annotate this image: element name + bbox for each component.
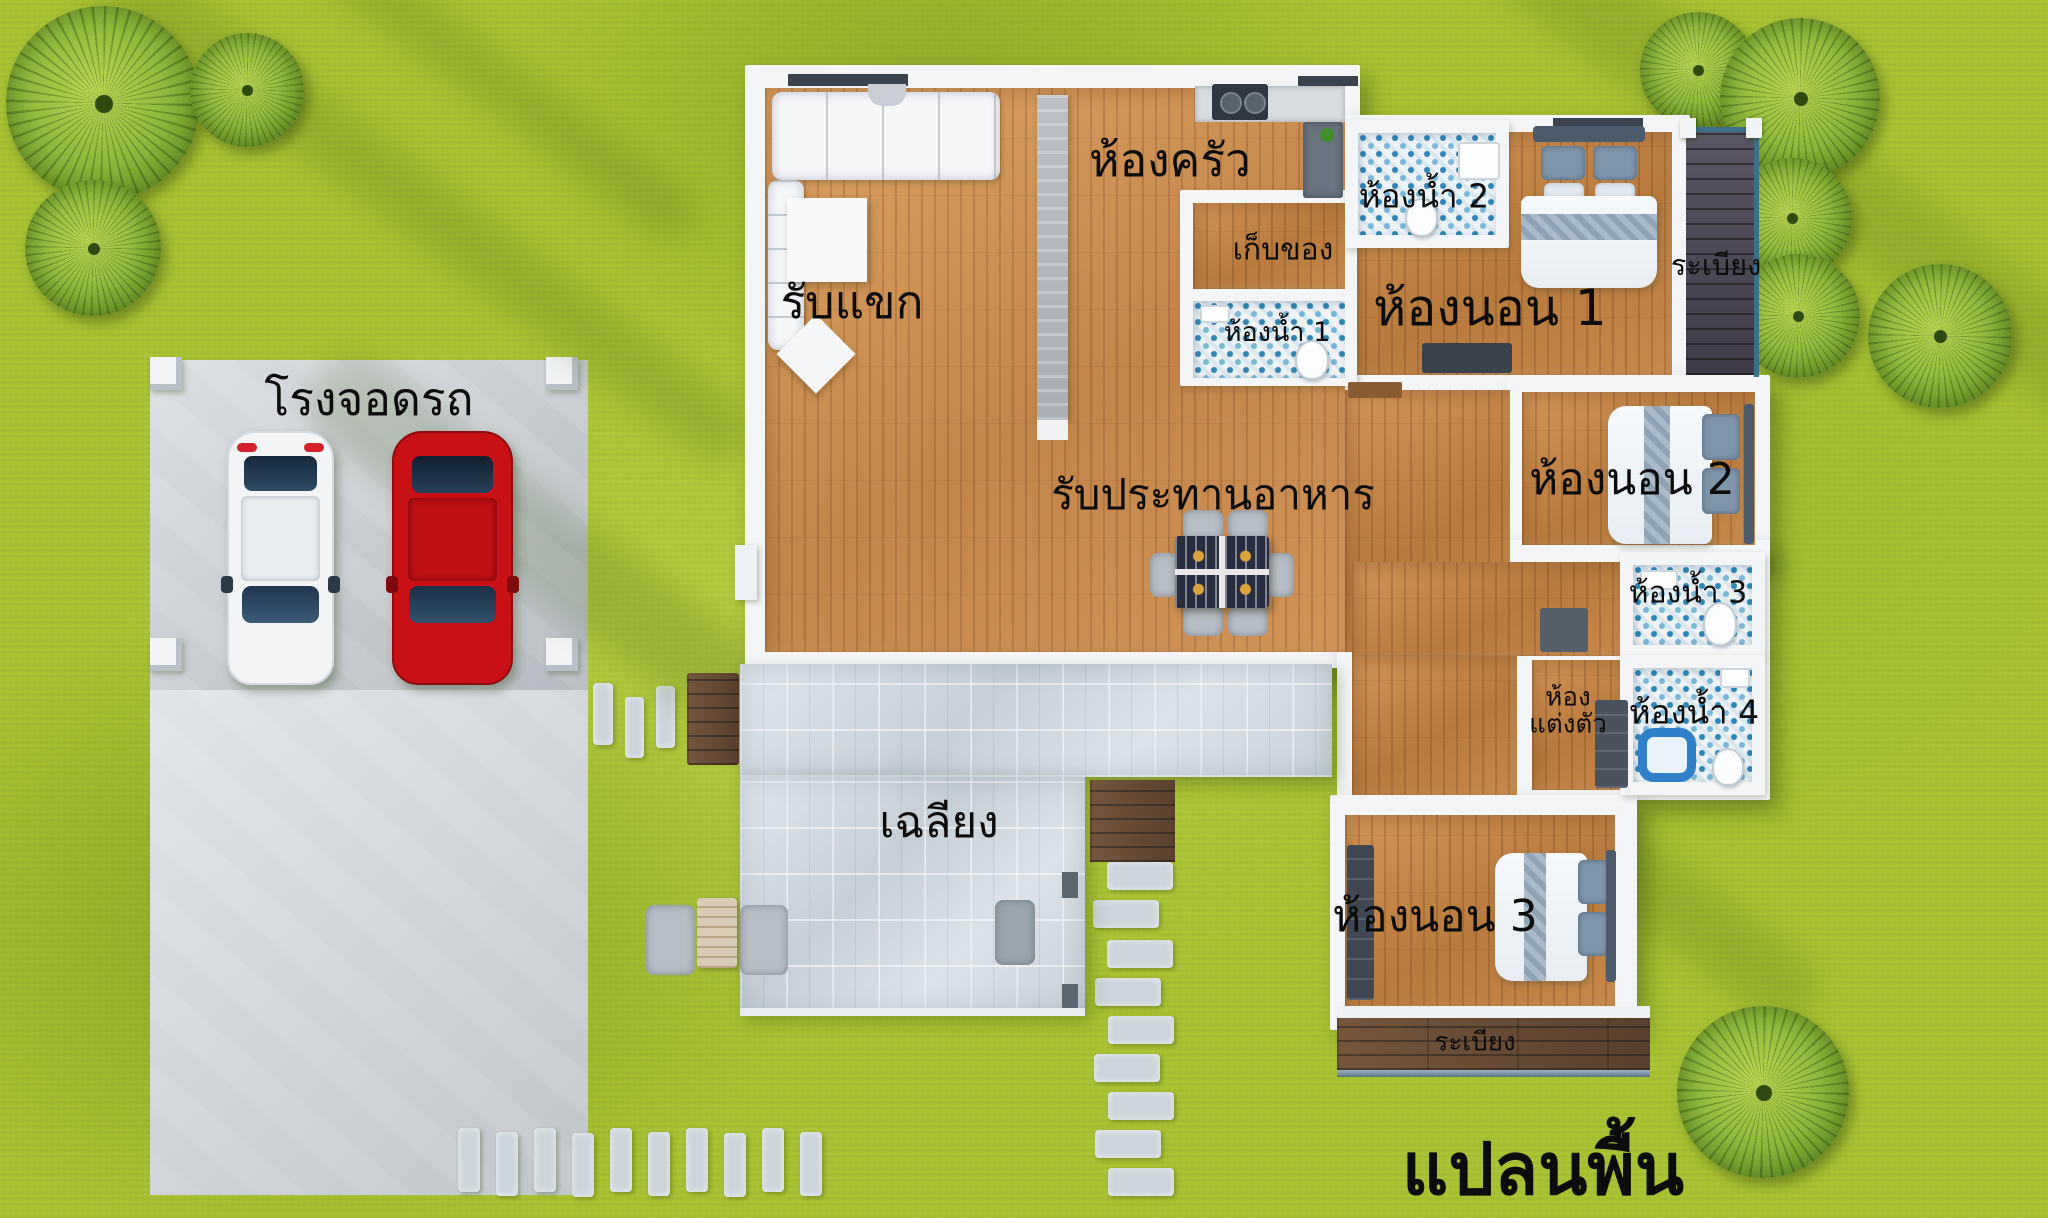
porch-post bbox=[1062, 984, 1078, 1008]
carport-pillar bbox=[150, 357, 182, 390]
label-dressing: ห้อง แต่งตัว bbox=[1529, 685, 1607, 740]
bed-pillow bbox=[1541, 146, 1585, 180]
stepping-stone bbox=[648, 1132, 670, 1196]
stone-partition-wall bbox=[1037, 95, 1068, 420]
stepping-stone bbox=[534, 1128, 556, 1192]
bed-pillow bbox=[1578, 860, 1608, 904]
stove-cooktop bbox=[1212, 84, 1268, 120]
stepping-stone bbox=[1108, 1016, 1174, 1044]
car-mirror bbox=[328, 576, 340, 593]
stepping-stone bbox=[1093, 900, 1159, 928]
stepping-stone bbox=[1095, 978, 1161, 1006]
toilet-icon bbox=[1712, 748, 1744, 786]
stepping-stone bbox=[1094, 1054, 1160, 1082]
stepping-stone bbox=[496, 1132, 518, 1196]
car-roof bbox=[408, 498, 497, 581]
carport-pillar bbox=[546, 638, 578, 671]
hall-cabinet bbox=[1540, 608, 1588, 652]
kitchen-window bbox=[1298, 76, 1358, 86]
partition-shelf bbox=[1037, 420, 1068, 440]
dining-table bbox=[1175, 536, 1269, 608]
label-bathroom3: ห้องน้ำ 3 bbox=[1629, 577, 1747, 609]
car-rear-window bbox=[244, 456, 316, 491]
label-bedroom1: ห้องนอน 1 bbox=[1373, 282, 1607, 335]
wood-deck-connector bbox=[1090, 780, 1175, 862]
stepping-stone bbox=[762, 1128, 784, 1192]
bathtub-icon bbox=[1638, 728, 1696, 782]
tree-icon bbox=[1868, 264, 2012, 408]
page-title: แปลนพื้น bbox=[1402, 1132, 1684, 1208]
curtain bbox=[868, 84, 906, 106]
bed-runner bbox=[1521, 214, 1657, 240]
bed-pillow bbox=[1593, 146, 1637, 180]
stepping-stone bbox=[593, 683, 613, 745]
stepping-stone bbox=[1107, 940, 1173, 968]
porch-post bbox=[1062, 872, 1078, 898]
car-rear-window bbox=[412, 456, 494, 494]
label-kitchen: ห้องครัว bbox=[1089, 136, 1251, 184]
coffee-table bbox=[787, 198, 867, 282]
car-taillight bbox=[304, 443, 324, 452]
garden-table bbox=[697, 898, 737, 968]
label-bathroom2: ห้องน้ำ 2 bbox=[1359, 180, 1489, 215]
stepping-stone bbox=[1107, 862, 1173, 890]
garden-chair bbox=[740, 905, 788, 975]
stepping-stone bbox=[1095, 1130, 1161, 1158]
porch-edge bbox=[740, 1008, 1085, 1016]
stove-burner bbox=[1244, 92, 1266, 114]
tree-icon bbox=[190, 33, 304, 147]
vanity-icon bbox=[1458, 142, 1500, 180]
stepping-stone bbox=[625, 697, 644, 758]
driveway bbox=[150, 690, 588, 1195]
stepping-stone bbox=[1108, 1092, 1174, 1120]
car-mirror bbox=[507, 576, 519, 593]
hall-console bbox=[1348, 382, 1402, 398]
tree-icon bbox=[1677, 1006, 1849, 1178]
bed-duvet bbox=[1521, 196, 1657, 288]
label-bedroom3: ห้องนอน 3 bbox=[1332, 894, 1537, 940]
dining-chair bbox=[1266, 553, 1294, 597]
bed-headboard bbox=[1606, 850, 1616, 982]
label-bedroom2: ห้องนอน 2 bbox=[1529, 457, 1734, 503]
carport-pillar bbox=[150, 638, 182, 671]
stepping-stone bbox=[610, 1128, 632, 1192]
label-balcony-bottom: ระเบียง bbox=[1434, 1029, 1515, 1056]
balcony-post bbox=[1746, 118, 1762, 138]
dining-chair bbox=[1228, 606, 1268, 636]
car-mirror bbox=[386, 576, 398, 593]
car-roof bbox=[241, 496, 319, 581]
label-storage: เก็บของ bbox=[1233, 234, 1334, 266]
stepping-stone bbox=[572, 1133, 594, 1197]
wood-entry-step bbox=[687, 673, 739, 765]
white-car bbox=[227, 431, 334, 685]
car-windshield bbox=[242, 586, 318, 624]
porch-tile-area bbox=[740, 664, 1332, 777]
carport-pillar bbox=[546, 357, 578, 390]
label-bathroom1: ห้องน้ำ 1 bbox=[1224, 319, 1331, 347]
sink-icon bbox=[1720, 668, 1750, 688]
label-dressing-line2: แต่งตัว bbox=[1529, 712, 1607, 739]
car-windshield bbox=[409, 586, 496, 624]
garden-chair bbox=[646, 905, 695, 975]
bed-headboard bbox=[1744, 404, 1754, 544]
label-porch: เฉลียง bbox=[879, 800, 998, 846]
stepping-stone bbox=[686, 1128, 708, 1192]
bed-headboard bbox=[1533, 126, 1645, 142]
label-living: รับแขก bbox=[781, 278, 924, 326]
balcony-railing bbox=[1337, 1070, 1650, 1077]
dining-chair bbox=[1183, 606, 1223, 636]
lounge-chair bbox=[995, 900, 1035, 965]
label-dressing-line1: ห้อง bbox=[1529, 685, 1607, 712]
car-taillight bbox=[237, 443, 257, 452]
label-bathroom4: ห้องน้ำ 4 bbox=[1629, 696, 1759, 731]
red-car bbox=[392, 431, 513, 685]
tv-console bbox=[1422, 343, 1512, 373]
corridor-floor bbox=[1352, 656, 1517, 795]
stepping-stone bbox=[1108, 1168, 1174, 1196]
bed-pillow bbox=[1578, 912, 1608, 956]
car-mirror bbox=[221, 576, 233, 593]
tree-icon bbox=[25, 180, 161, 316]
tree-icon bbox=[6, 6, 200, 200]
plant-icon bbox=[1320, 128, 1334, 142]
side-door-step bbox=[735, 545, 757, 600]
dining-chair bbox=[1150, 553, 1178, 597]
label-carport: โรงจอดรถ bbox=[265, 375, 474, 423]
stepping-stone bbox=[800, 1132, 822, 1196]
stove-burner bbox=[1220, 92, 1242, 114]
balcony-edge bbox=[1337, 1006, 1650, 1018]
balcony-post bbox=[1680, 118, 1696, 138]
label-balcony-right: ระเบียง bbox=[1671, 250, 1762, 280]
floor-plan-scene: โรงจอดรถ รับแขก ห้องครัว เก็บของ ห้องน้ำ… bbox=[0, 0, 2048, 1218]
stepping-stone bbox=[724, 1133, 746, 1197]
label-dining: รับประทานอาหาร bbox=[1051, 473, 1375, 517]
stepping-stone bbox=[458, 1128, 480, 1192]
